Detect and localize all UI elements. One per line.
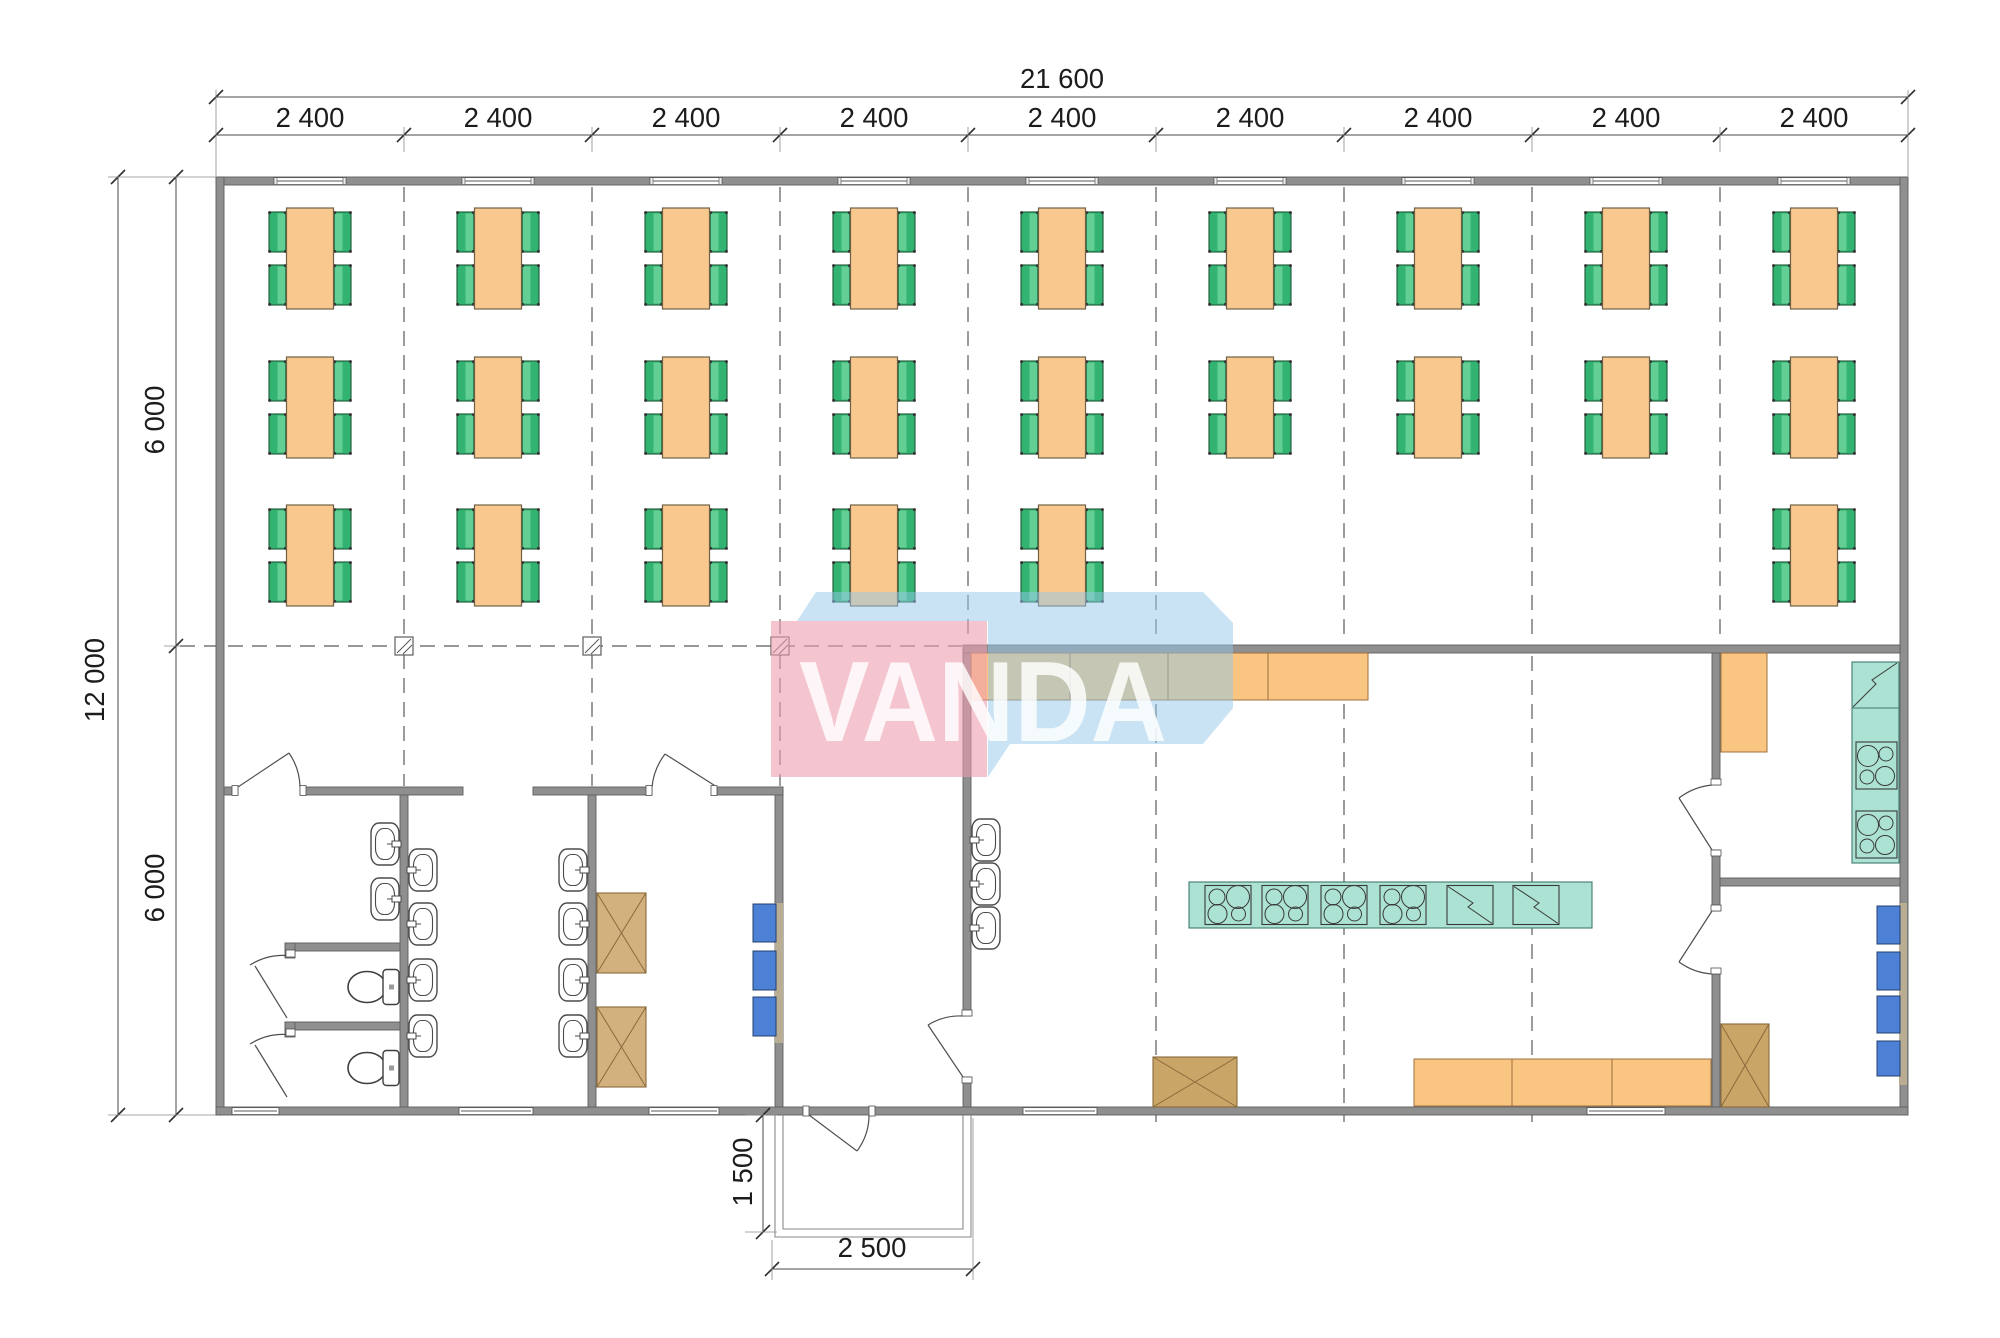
svg-text:2 400: 2 400 [1216,102,1285,133]
svg-text:2 400: 2 400 [1028,102,1097,133]
svg-text:2 400: 2 400 [652,102,721,133]
svg-text:VANDA: VANDA [799,639,1167,766]
svg-text:2 400: 2 400 [1592,102,1661,133]
svg-text:2 400: 2 400 [1780,102,1849,133]
svg-text:2 400: 2 400 [1404,102,1473,133]
svg-text:2 400: 2 400 [840,102,909,133]
svg-text:12 000: 12 000 [79,638,110,722]
svg-text:2 500: 2 500 [838,1232,907,1263]
svg-text:2 400: 2 400 [276,102,345,133]
svg-text:1 500: 1 500 [727,1138,758,1207]
svg-text:6 000: 6 000 [139,854,170,923]
svg-text:21 600: 21 600 [1020,63,1104,94]
svg-text:2 400: 2 400 [464,102,533,133]
svg-text:6 000: 6 000 [139,386,170,455]
